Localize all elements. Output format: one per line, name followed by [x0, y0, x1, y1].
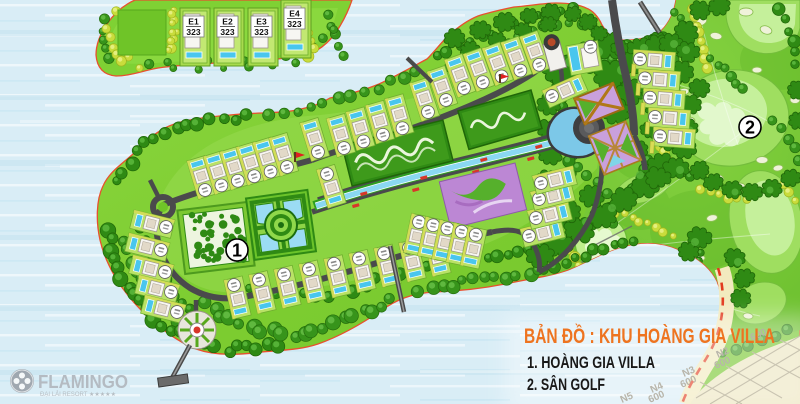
svg-text:1: 1 [232, 241, 242, 261]
svg-text:ĐẠI LẢI RESORT ★★★★★: ĐẠI LẢI RESORT ★★★★★ [40, 391, 116, 398]
svg-text:323: 323 [287, 19, 301, 29]
svg-text:E3: E3 [256, 17, 267, 27]
svg-text:323: 323 [220, 27, 234, 37]
svg-text:E4: E4 [289, 9, 300, 19]
svg-text:FLAMINGO: FLAMINGO [38, 372, 128, 392]
svg-text:2: 2 [745, 118, 755, 138]
svg-text:2. SÂN GOLF: 2. SÂN GOLF [527, 375, 605, 394]
svg-text:1. HOÀNG GIA VILLA: 1. HOÀNG GIA VILLA [527, 353, 655, 372]
svg-text:323: 323 [186, 27, 200, 37]
svg-text:BẢN ĐỒ : KHU HOÀNG GIA VILLA: BẢN ĐỒ : KHU HOÀNG GIA VILLA [524, 324, 775, 348]
svg-text:E1: E1 [188, 17, 199, 27]
svg-text:E2: E2 [222, 17, 233, 27]
svg-text:323: 323 [254, 27, 268, 37]
